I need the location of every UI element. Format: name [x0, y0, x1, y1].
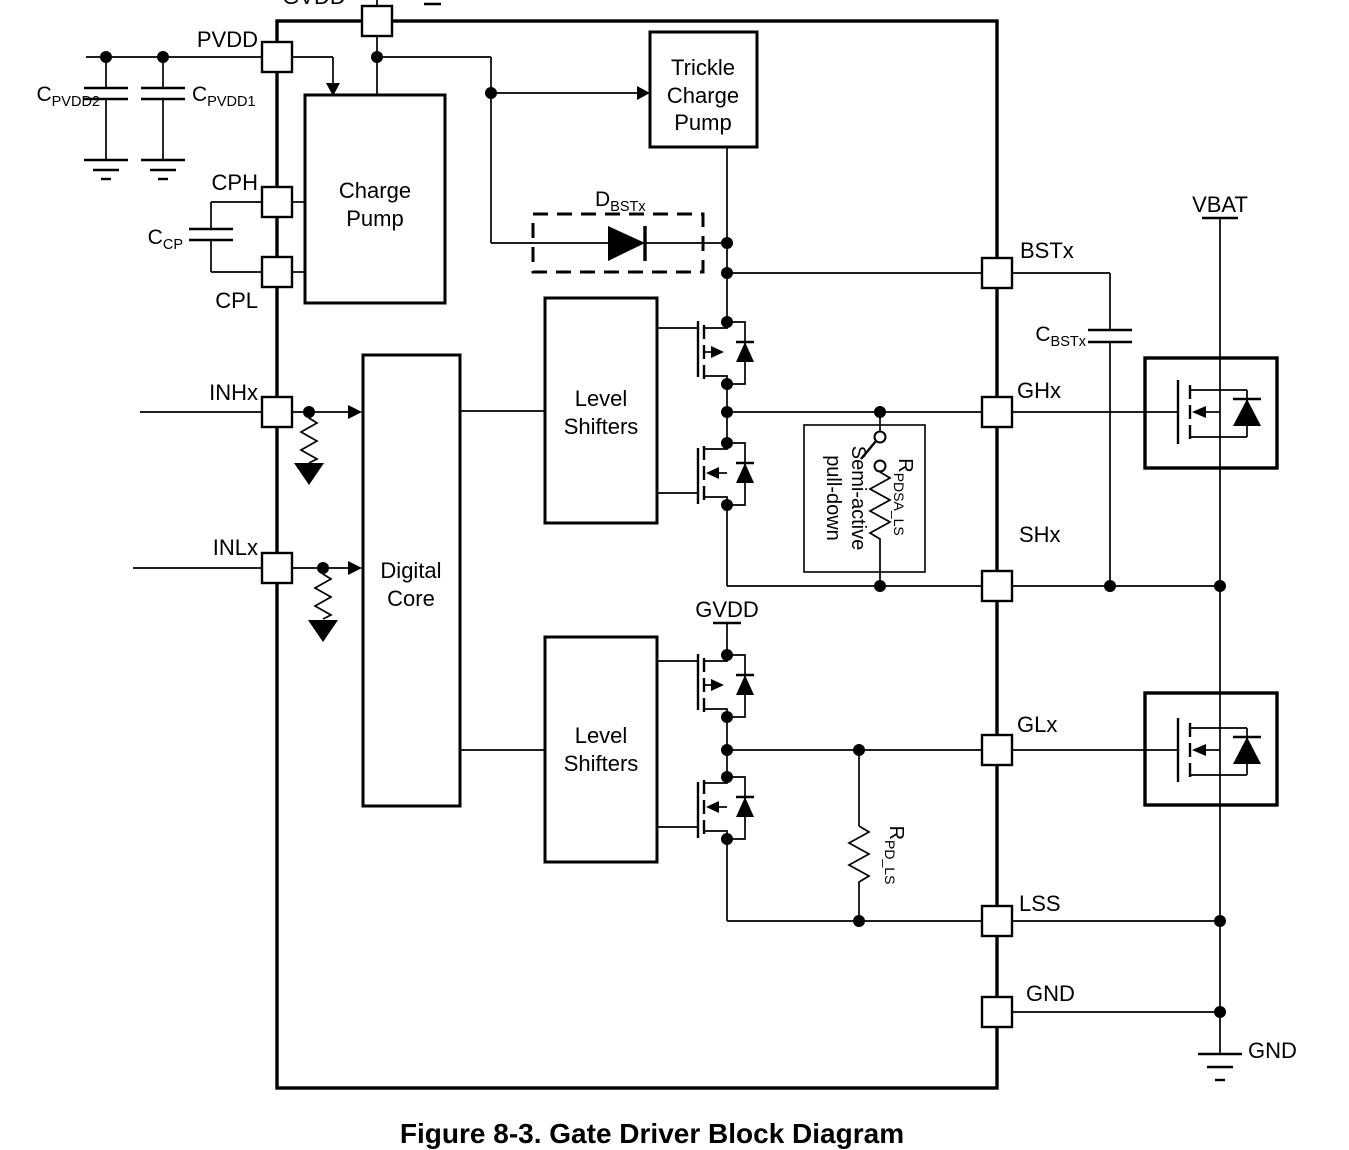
cbstx-label: CBSTx: [1035, 323, 1086, 350]
switch-contact-bottom: [875, 461, 886, 472]
figure-caption: Figure 8-3. Gate Driver Block Diagram: [400, 1118, 904, 1149]
digital-core-label-2: Core: [387, 586, 435, 611]
pin-pvdd: [262, 42, 292, 72]
diagram-canvas: DBSTx: [0, 0, 1349, 1150]
internal-fet-low-sink: [657, 771, 754, 845]
digital-core-label-1: Digital: [380, 558, 441, 583]
pin-shx: [982, 571, 1012, 601]
ls-high-label-1: Level: [575, 386, 628, 411]
inlx-pulldown-ground-arrow: [308, 620, 338, 642]
semi-active-label-1: Semi-active: [847, 446, 869, 550]
pvdd-pin-label: PVDD: [197, 27, 258, 52]
internal-fet-high-source: [657, 316, 754, 390]
cpl-pin-label: CPL: [215, 288, 258, 313]
gnd-pin-label: GND: [1026, 981, 1075, 1006]
pin-gvdd: [362, 6, 392, 36]
glx-pin-label: GLx: [1017, 712, 1057, 737]
external-fet-low-outline: [1145, 693, 1277, 805]
ls-low-label-2: Shifters: [564, 751, 639, 776]
inlx-pulldown-resistor: [315, 570, 331, 619]
semi-active-pulldown: Semi-active pull-down RPDSA_LS: [804, 406, 925, 592]
pin-bstx: [982, 258, 1012, 288]
net-pvdd-internal: [292, 57, 340, 96]
pin-inlx: [262, 553, 292, 583]
pin-gnd: [982, 997, 1012, 1027]
ccp-label: CCP: [148, 226, 183, 253]
shx-pin-label: SHx: [1019, 522, 1061, 547]
vbat-label: VBAT: [1192, 192, 1248, 217]
arrow-into-trickle-pump: [637, 86, 650, 100]
pin-ghx: [982, 397, 1012, 427]
cph-pin-label: CPH: [212, 170, 258, 195]
arrow-into-digital-core: [348, 405, 362, 419]
rpdsa-resistor: [870, 472, 890, 545]
net-pvdd-external: [84, 51, 262, 179]
pin-inhx: [262, 397, 292, 427]
charge-pump-label-2: Pump: [346, 206, 403, 231]
semi-active-label-2: pull-down: [822, 455, 844, 541]
trickle-label-2: Charge: [667, 83, 739, 108]
pin-glx: [982, 735, 1012, 765]
gvdd-pin-label: GVDD: [282, 0, 346, 9]
gate-driver-block-diagram: DBSTx: [0, 0, 1349, 1150]
pin-lss: [982, 906, 1012, 936]
net-inlx: [133, 561, 362, 642]
internal-drive-rail: [721, 147, 982, 322]
dbstx-label: DBSTx: [595, 188, 646, 215]
ls-high-label-2: Shifters: [564, 414, 639, 439]
charge-pump-label-1: Charge: [339, 178, 411, 203]
cpvdd1-label: CPVDD1: [192, 83, 256, 110]
external-ground-symbol: GND: [1198, 1012, 1297, 1080]
level-shifters-low-block: [545, 637, 657, 862]
external-fet-high-outline: [1145, 358, 1277, 468]
arrow-into-digital-core: [348, 561, 362, 575]
external-mosfet-low: [1145, 693, 1277, 805]
inhx-pulldown-ground-arrow: [294, 463, 324, 485]
gvdd-mid-label: GVDD: [695, 597, 759, 622]
net-vbat: VBAT: [1192, 192, 1248, 1018]
internal-fet-high-sink: [657, 437, 754, 511]
diode-triangle: [608, 226, 645, 261]
pin-cph: [262, 187, 292, 217]
inlx-pin-label: INLx: [213, 535, 258, 560]
pin-cpl: [262, 257, 292, 287]
trickle-label-3: Pump: [674, 110, 731, 135]
ghx-pin-label: GHx: [1017, 378, 1061, 403]
inhx-pulldown-resistor: [301, 414, 317, 463]
inhx-pin-label: INHx: [209, 380, 258, 405]
lss-pin-label: LSS: [1019, 891, 1061, 916]
ls-low-label-1: Level: [575, 723, 628, 748]
rpdsa-label: RPDSA_LS: [891, 458, 916, 536]
trickle-label-1: Trickle: [671, 55, 735, 80]
external-mosfet-high: [1145, 358, 1277, 468]
net-gvdd-mid: GVDD: [695, 597, 759, 655]
internal-fet-low-source: [657, 649, 754, 723]
rpd-ls-label: RPD_LS: [882, 826, 907, 885]
net-inhx: [140, 405, 362, 485]
bstx-pin-label: BSTx: [1020, 238, 1074, 263]
bootstrap-diode-dbstx: DBSTx: [491, 188, 727, 272]
rpd-ls-resistor: RPD_LS: [849, 744, 907, 927]
switch-contact-top: [875, 432, 886, 443]
gnd-symbol-label: GND: [1248, 1038, 1297, 1063]
